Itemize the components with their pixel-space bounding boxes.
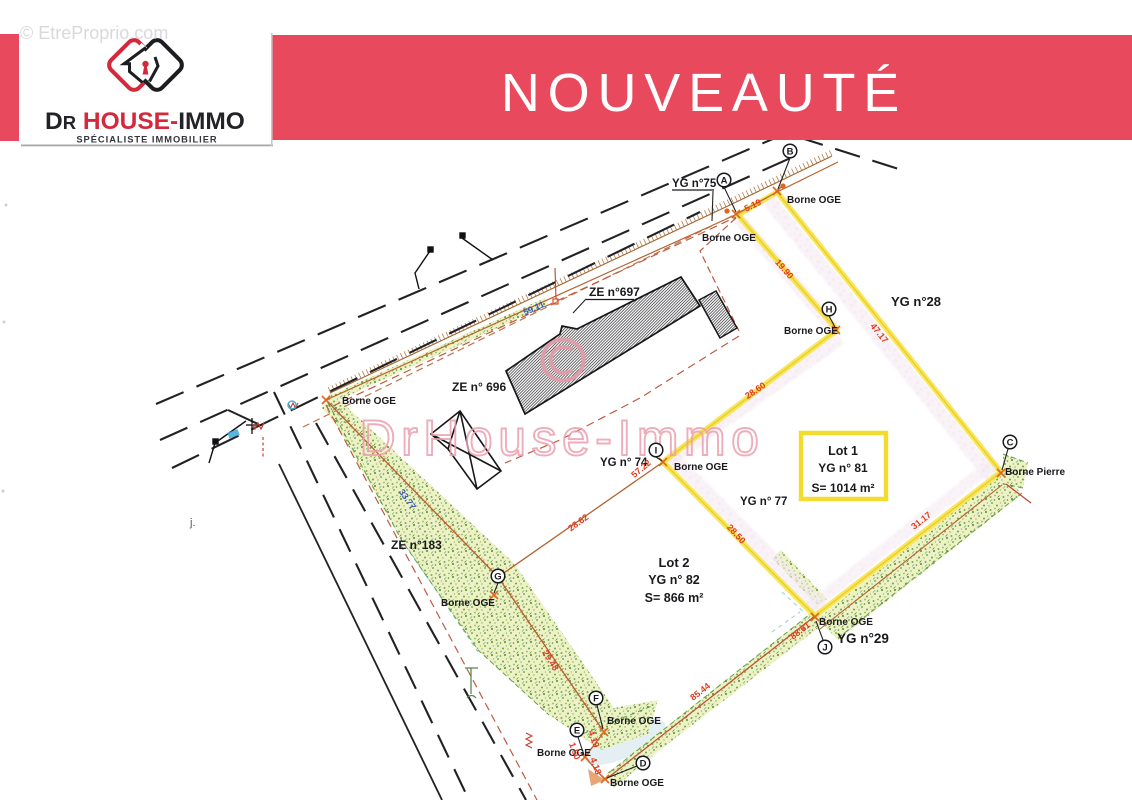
svg-text:SPÉCIALISTE IMMOBILIER: SPÉCIALISTE IMMOBILIER (76, 135, 217, 145)
svg-text:S= 866 m²: S= 866 m² (645, 591, 704, 605)
svg-text:Borne OGE: Borne OGE (784, 326, 838, 337)
svg-text:YG n°29: YG n°29 (837, 631, 889, 646)
svg-text:E: E (574, 726, 580, 737)
svg-text:YG n° 82: YG n° 82 (648, 573, 700, 587)
svg-text:j.: j. (189, 517, 196, 529)
svg-text:YG n° 77: YG n° 77 (740, 496, 787, 508)
svg-text:B: B (787, 147, 794, 158)
svg-text:Borne OGE: Borne OGE (537, 748, 591, 759)
svg-text:Lot 1: Lot 1 (828, 444, 858, 458)
svg-text:A: A (721, 176, 728, 187)
svg-text:ZE n°183: ZE n°183 (391, 538, 442, 552)
svg-text:YG n°75: YG n°75 (672, 178, 717, 190)
svg-text:ZE n°697: ZE n°697 (589, 285, 640, 299)
svg-text:Borne Pierre: Borne Pierre (1005, 467, 1065, 478)
svg-text:DR HOUSE-IMMO: DR HOUSE-IMMO (45, 108, 245, 135)
svg-text:Borne OGE: Borne OGE (607, 716, 661, 727)
svg-text:Borne OGE: Borne OGE (674, 462, 728, 473)
svg-text:YG n°28: YG n°28 (891, 294, 941, 309)
svg-text:NOUVEAUTÉ: NOUVEAUTÉ (501, 63, 907, 123)
svg-text:Borne OGE: Borne OGE (610, 778, 664, 789)
svg-text:Borne OGE: Borne OGE (787, 195, 841, 206)
svg-text:Borne OGE: Borne OGE (819, 617, 873, 628)
svg-text:H: H (826, 305, 833, 316)
svg-text:DrHouse-Immo: DrHouse-Immo (360, 410, 765, 466)
svg-text:Borne OGE: Borne OGE (441, 598, 495, 609)
svg-text:G: G (494, 572, 501, 583)
svg-text:Lot 2: Lot 2 (658, 555, 689, 570)
svg-text:J: J (822, 643, 827, 654)
svg-text:I: I (655, 446, 658, 457)
svg-text:Borne OGE: Borne OGE (702, 233, 756, 244)
svg-text:F: F (593, 694, 599, 705)
svg-text:ZE n° 696: ZE n° 696 (452, 380, 506, 394)
svg-text:S= 1014 m²: S= 1014 m² (811, 481, 874, 495)
svg-text:© EtreProprio.com: © EtreProprio.com (20, 23, 168, 43)
svg-text:YG n° 81: YG n° 81 (818, 461, 868, 475)
svg-text:Borne OGE: Borne OGE (342, 396, 396, 407)
svg-text:D: D (640, 759, 647, 770)
svg-text:C: C (1007, 438, 1014, 449)
